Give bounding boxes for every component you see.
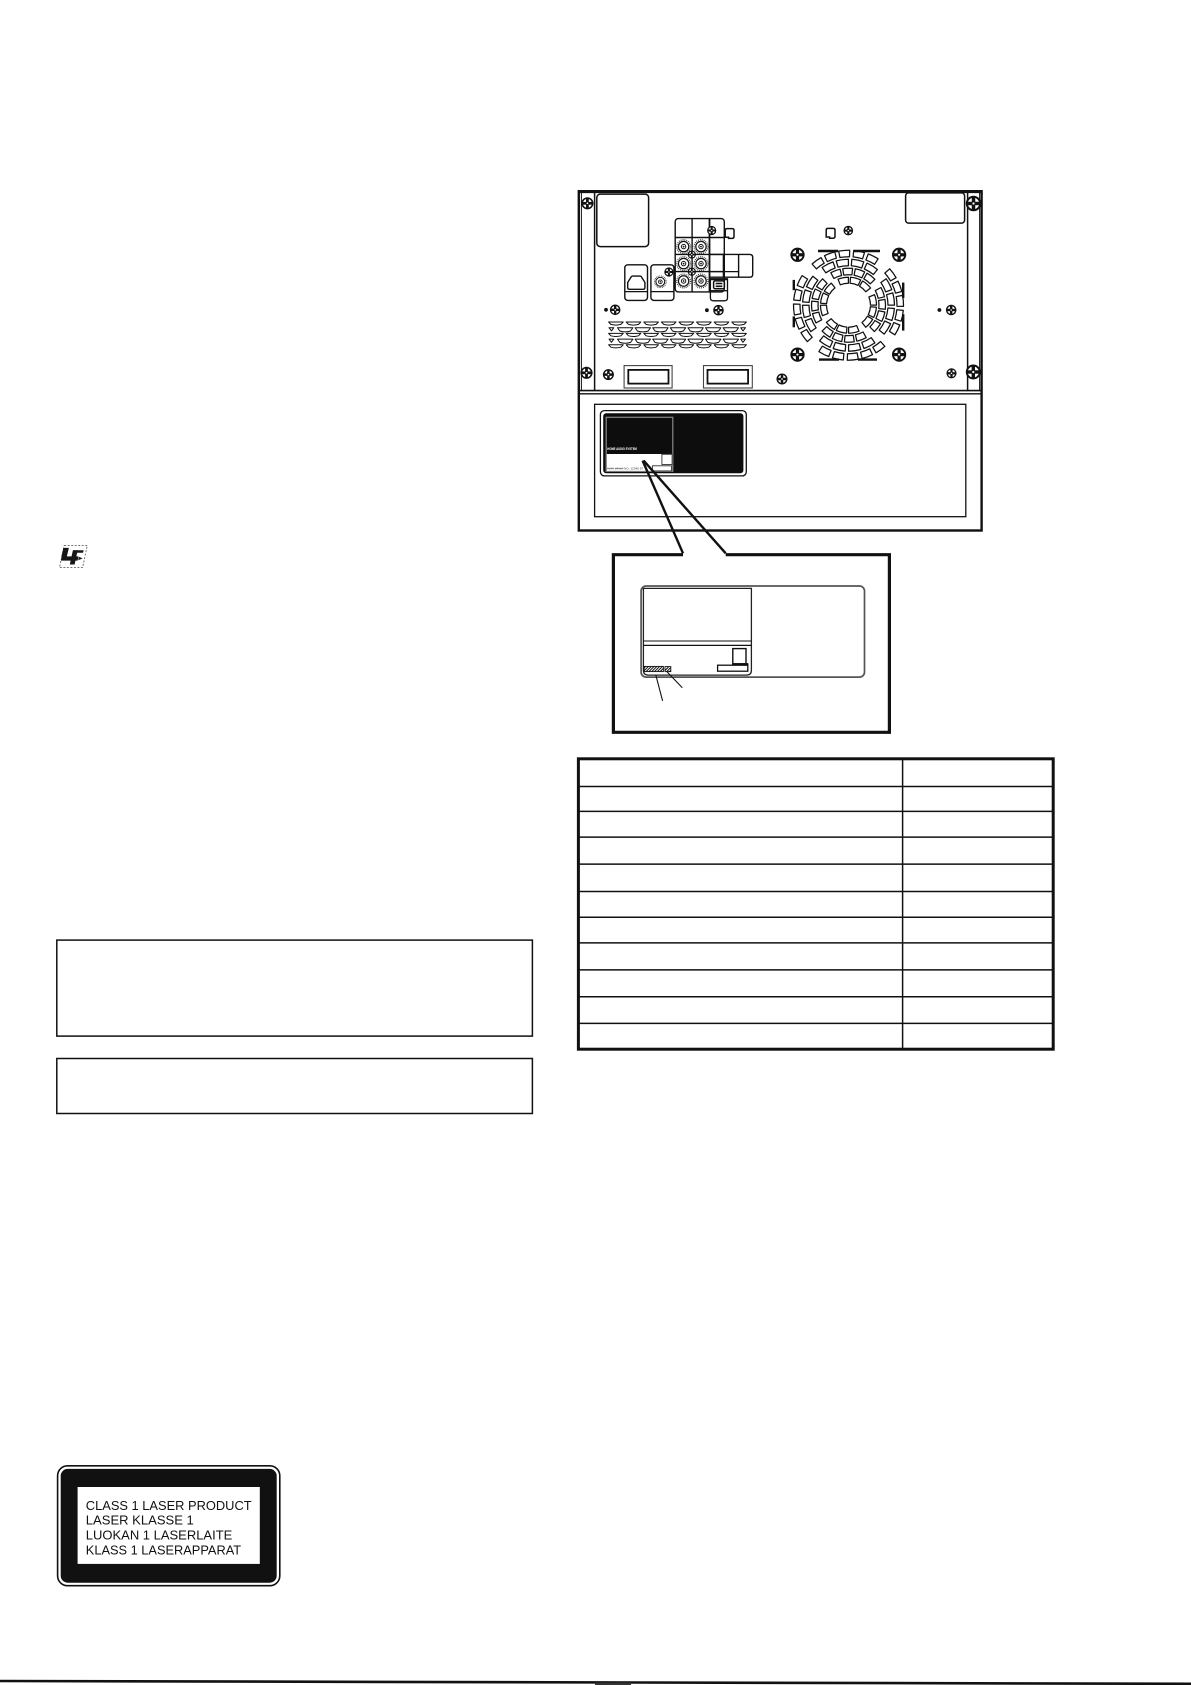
svg-text:KLASS 1 LASERAPPARAT: KLASS 1 LASERAPPARAT <box>86 1543 241 1558</box>
svg-text:HOME AUDIO SYSTEM: HOME AUDIO SYSTEM <box>607 446 637 451</box>
svg-text:#### ##### NO. 12345 67: #### ##### NO. 12345 67 <box>607 466 643 470</box>
svg-text:LUOKAN 1 LASERLAITE: LUOKAN 1 LASERLAITE <box>86 1528 233 1543</box>
svg-text:LASER KLASSE 1: LASER KLASSE 1 <box>86 1513 194 1528</box>
svg-text:CLASS 1 LASER PRODUCT: CLASS 1 LASER PRODUCT <box>86 1498 252 1513</box>
